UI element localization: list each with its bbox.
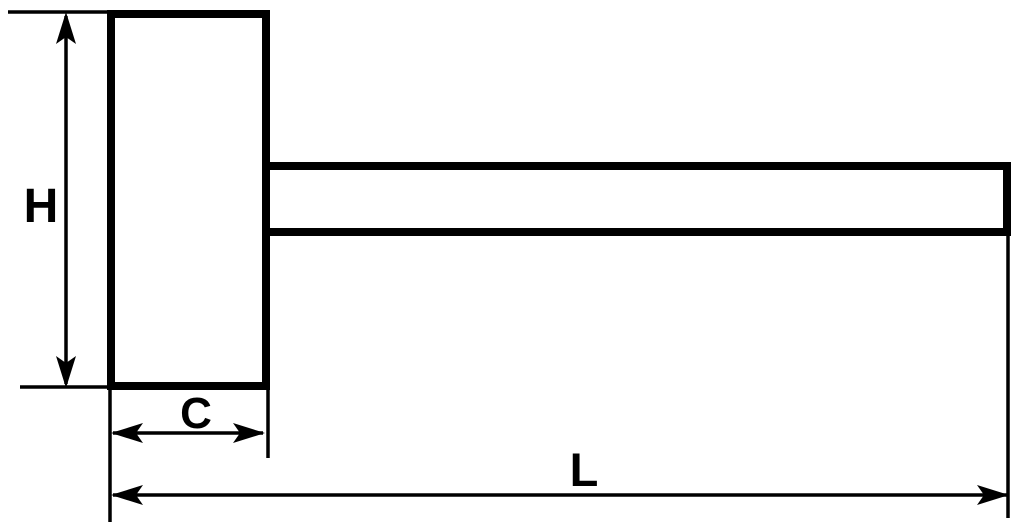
dimension-h: H (8, 12, 111, 388)
hammer-dimension-diagram: H C L (0, 0, 1024, 529)
dimension-label-h: H (24, 180, 59, 233)
hammer-handle-outline (266, 166, 1007, 232)
hammer-head-outline (111, 14, 266, 386)
dimension-label-c: C (180, 389, 212, 438)
technical-drawing-canvas: H C L (0, 0, 1024, 529)
dimension-label-l: L (570, 443, 599, 496)
